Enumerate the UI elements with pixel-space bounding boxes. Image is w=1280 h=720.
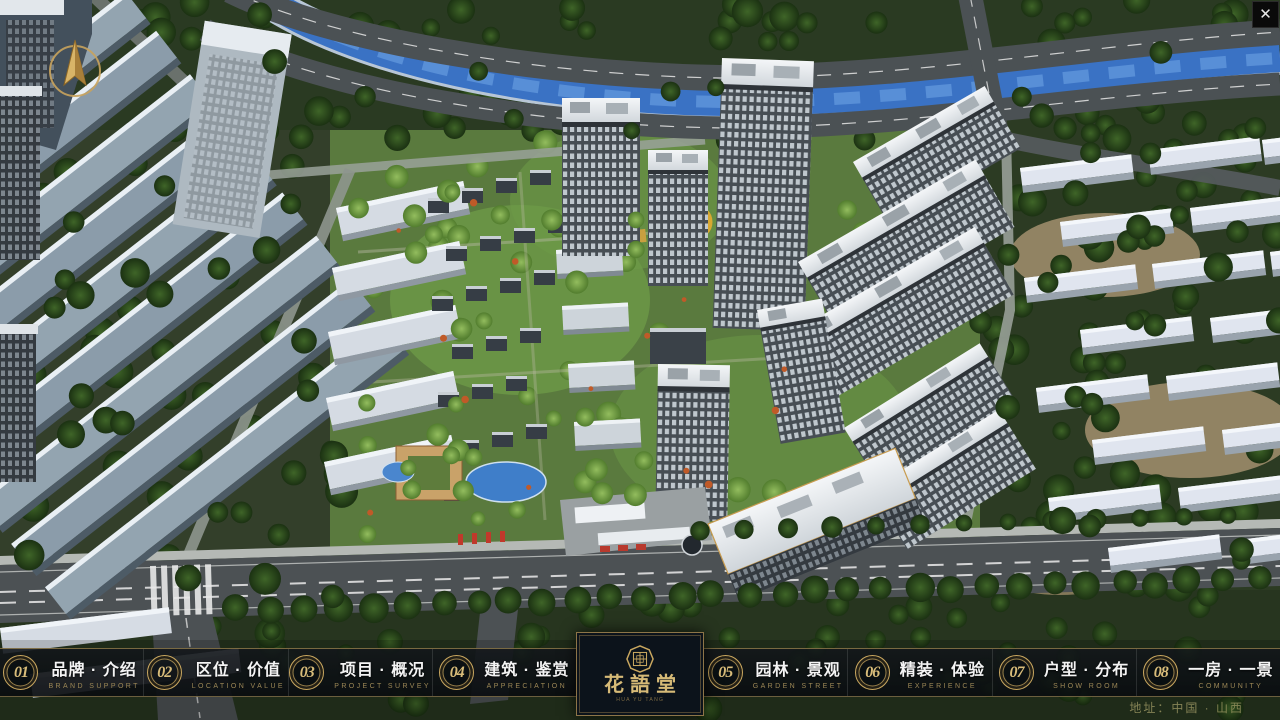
nav-item-label-en: APPRECIATION	[487, 683, 567, 690]
nav-item-label-zh: 项目 · 概况	[340, 656, 425, 680]
nav-item-02[interactable]: 02 区位 · 价值 LOCATION VALUE	[143, 649, 287, 696]
nav-item-label-zh: 精装 · 体验	[900, 656, 985, 680]
nav-item-number: 01	[14, 664, 28, 682]
nav-item-03[interactable]: 03 项目 · 概况 PROJECT SURVEY	[288, 649, 432, 696]
nav-item-number-badge: 03	[289, 655, 324, 690]
nav-item-number-badge: 02	[147, 655, 182, 690]
nav-item-label-en: EXPERIENCE	[908, 683, 977, 690]
nav-item-number-badge: 06	[855, 655, 890, 690]
nav-item-number: 05	[718, 664, 732, 682]
nav-item-label-zh: 区位 · 价值	[196, 656, 281, 680]
nav-item-label-en: COMMUNITY	[1198, 683, 1263, 690]
nav-item-04[interactable]: 04 建筑 · 鉴赏 APPRECIATION	[432, 649, 576, 696]
nav-item-07[interactable]: 07 户型 · 分布 SHOW ROOM	[992, 649, 1136, 696]
nav-item-labels: 精装 · 体验 EXPERIENCE	[900, 656, 985, 690]
nav-item-labels: 建筑 · 鉴赏 APPRECIATION	[484, 656, 569, 690]
nav-item-label-en: BRAND SUPPORT	[48, 683, 139, 690]
nav-item-label-zh: 一房 · 一景	[1188, 656, 1273, 680]
nav-item-labels: 区位 · 价值 LOCATION VALUE	[192, 656, 285, 690]
nav-item-label-en: PROJECT SURVEY	[334, 683, 431, 690]
nav-item-label-en: GARDEN STREET	[753, 683, 844, 690]
nav-item-number: 07	[1010, 664, 1024, 682]
nav-item-number: 04	[450, 664, 464, 682]
nav-item-label-zh: 品牌 · 介绍	[52, 656, 137, 680]
nav-item-number-badge: 08	[1143, 655, 1178, 690]
nav-item-label-zh: 建筑 · 鉴赏	[484, 656, 569, 680]
nav-item-06[interactable]: 06 精装 · 体验 EXPERIENCE	[847, 649, 991, 696]
nav-item-labels: 一房 · 一景 COMMUNITY	[1188, 656, 1273, 690]
compass-icon	[44, 34, 106, 102]
nav-item-number-badge: 01	[3, 655, 38, 690]
nav-item-number: 03	[300, 664, 314, 682]
bottom-nav: 01 品牌 · 介绍 BRAND SUPPORT 02 区位 · 价值 LOCA…	[0, 648, 1280, 697]
nav-group-right: 05 园林 · 景观 GARDEN STREET 06 精装 · 体验 EXPE…	[704, 649, 1280, 696]
nav-item-label-zh: 户型 · 分布	[1044, 656, 1129, 680]
nav-item-number: 02	[157, 664, 171, 682]
nav-item-label-zh: 园林 · 景观	[756, 656, 841, 680]
project-logo-subtitle: HUA YU TANG	[616, 697, 664, 702]
nav-item-number: 08	[1154, 664, 1168, 682]
nav-item-labels: 户型 · 分布 SHOW ROOM	[1044, 656, 1129, 690]
project-logo-title: 花語堂	[598, 675, 682, 695]
nav-item-number-badge: 05	[708, 655, 743, 690]
nav-item-05[interactable]: 05 园林 · 景观 GARDEN STREET	[704, 649, 847, 696]
address-text: 地址：中国 · 山西	[1129, 699, 1244, 716]
nav-item-01[interactable]: 01 品牌 · 介绍 BRAND SUPPORT	[0, 649, 143, 696]
nav-item-labels: 项目 · 概况 PROJECT SURVEY	[334, 656, 431, 690]
nav-item-label-en: LOCATION VALUE	[192, 683, 285, 690]
nav-item-number-badge: 07	[999, 655, 1034, 690]
nav-item-number: 06	[865, 664, 879, 682]
masterplan-view[interactable]: ✕ 01 品牌 · 介绍 BRAND SUPPORT 02 区位 · 价值 LO…	[0, 0, 1280, 720]
logo-panel[interactable]: 花語堂 HUA YU TANG	[576, 632, 704, 716]
nav-item-label-en: SHOW ROOM	[1053, 683, 1120, 690]
nav-item-08[interactable]: 08 一房 · 一景 COMMUNITY	[1136, 649, 1280, 696]
close-icon: ✕	[1259, 7, 1272, 22]
nav-group-left: 01 品牌 · 介绍 BRAND SUPPORT 02 区位 · 价值 LOCA…	[0, 649, 576, 696]
nav-item-labels: 园林 · 景观 GARDEN STREET	[753, 656, 844, 690]
render-3d-aerial	[0, 0, 1280, 720]
logo-seal-icon	[626, 645, 654, 673]
nav-item-number-badge: 04	[439, 655, 474, 690]
nav-item-labels: 品牌 · 介绍 BRAND SUPPORT	[48, 656, 139, 690]
close-button[interactable]: ✕	[1252, 1, 1279, 28]
